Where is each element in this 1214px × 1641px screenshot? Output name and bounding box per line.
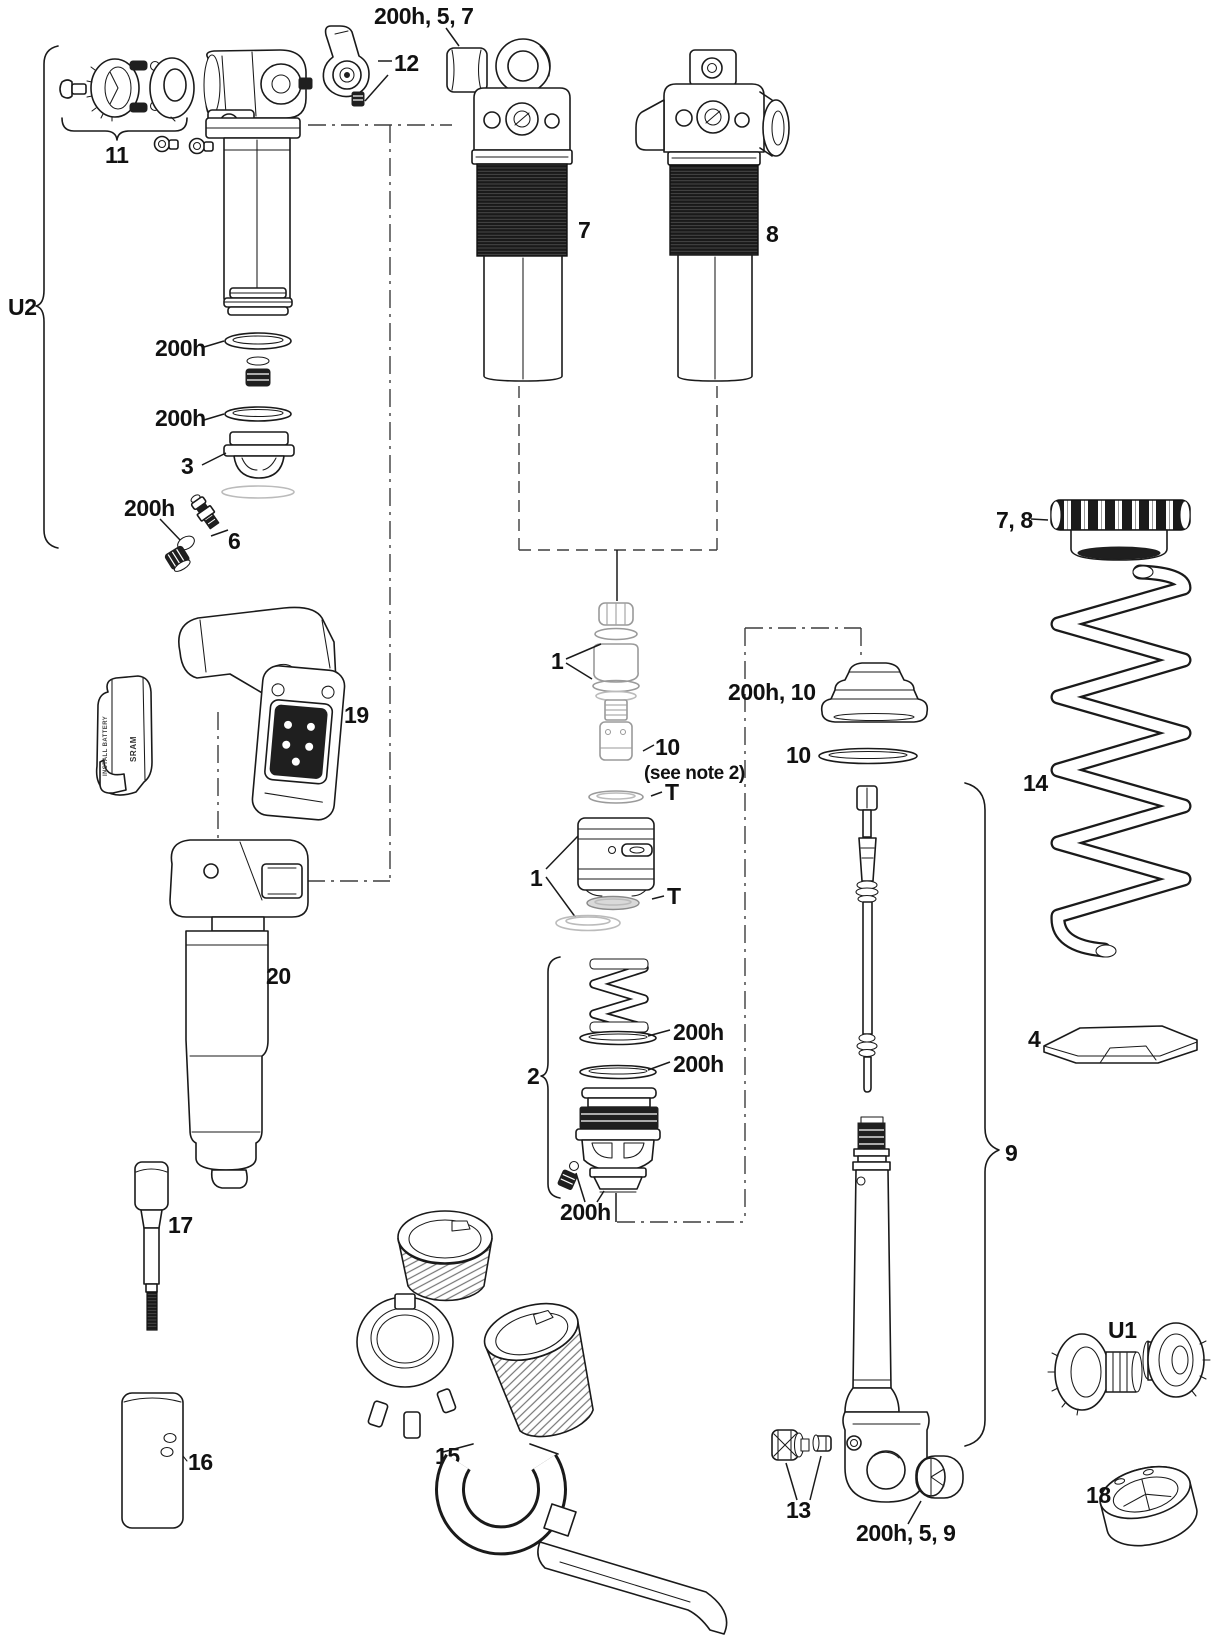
- bumper-200h-5-7: 200h, 5, 7: [374, 3, 487, 92]
- part-11-label: 11: [105, 142, 129, 168]
- damper-body-assembly: 13 200h, 5, 9: [772, 1117, 963, 1546]
- part-12-lever-group: 12: [323, 26, 418, 106]
- part-16-label: 16: [188, 1449, 213, 1475]
- shim-200h-a: [580, 1032, 656, 1045]
- shim-200h-b: [580, 1066, 656, 1079]
- grp2-200h-label-c: 200h: [560, 1199, 611, 1225]
- part-19-label: 19: [344, 702, 369, 728]
- collar-78-label: 7, 8: [996, 507, 1033, 533]
- reservoir-tube-16: 16: [122, 1393, 213, 1528]
- threaded-collar-c: [478, 1294, 607, 1447]
- bumper-top-label: 200h, 5, 7: [374, 3, 474, 29]
- air-can-assembly: [204, 50, 312, 309]
- grp2-200h-label-b: 200h: [673, 1051, 724, 1077]
- coil-spring-14: 14: [1023, 566, 1184, 957]
- preload-wrench: [443, 1444, 727, 1634]
- shock-body-7: 7: [472, 39, 590, 381]
- preload-collar-7-8: 7, 8: [996, 500, 1190, 560]
- part-13-label: 13: [786, 1497, 811, 1523]
- part-17-label: 17: [168, 1212, 193, 1238]
- u1-hardware: U1: [1048, 1317, 1210, 1415]
- bumper-200h-10: 200h, 10 10: [728, 663, 927, 768]
- body-7-label: 7: [578, 217, 590, 243]
- u2-bracket: U2: [8, 46, 58, 548]
- part-6-label: 6: [228, 528, 240, 554]
- 200h-label-c: 200h: [124, 495, 175, 521]
- o-ring-200h-b: [225, 407, 291, 421]
- bumper-200h-5-9: [916, 1456, 963, 1498]
- ifp-piston-1: [578, 818, 654, 896]
- bottom-out-plate: [590, 1168, 646, 1192]
- t-washer-lower: [587, 897, 639, 910]
- part-20-shock: 20: [170, 840, 308, 1188]
- set-screw: [352, 92, 364, 106]
- group-9-bracket: 9: [965, 783, 1017, 1446]
- module-pod: [251, 665, 346, 822]
- mount-bolt: [155, 137, 179, 152]
- part-1-label-piston: 1: [530, 865, 543, 891]
- spring-seat-4: 4: [1028, 1026, 1197, 1063]
- part-18-collar: [1095, 1458, 1203, 1554]
- part-20-label: 20: [266, 963, 291, 989]
- rebound-rod: [856, 786, 878, 1092]
- t-upper-label: T: [665, 779, 679, 805]
- part-6-air-valve: [187, 492, 221, 531]
- top-cap-1: [593, 603, 639, 701]
- damper-top-stack: 1 10 (see note 2) T 1: [530, 603, 745, 931]
- seat-4-label: 4: [1028, 1026, 1041, 1052]
- lever: [323, 26, 369, 97]
- grub-screw: [557, 1169, 577, 1190]
- part-13-nut: [772, 1430, 809, 1460]
- valve-fitting-dark: [246, 369, 270, 386]
- washer-10: [819, 749, 917, 764]
- exploded-parts-diagram: U2 11: [0, 0, 1214, 1641]
- u1-label: U1: [1108, 1317, 1137, 1343]
- u1-left-nut: [1048, 1334, 1142, 1415]
- u2-label: U2: [8, 294, 37, 320]
- o-ring-200h-a: [225, 333, 291, 349]
- part-10-label: 10: [655, 734, 680, 760]
- t-washer-upper: [589, 791, 643, 803]
- 200h-label-a: 200h: [155, 335, 206, 361]
- washer-10-label: 10: [786, 742, 811, 768]
- t-lower-label: T: [667, 883, 681, 909]
- spring-14-label: 14: [1023, 770, 1048, 796]
- mount-bolt: [190, 139, 214, 154]
- threaded-collar-a: [398, 1211, 492, 1300]
- part-19-module: 19 INSTALL BATTERY SRAM: [97, 607, 369, 821]
- part-3-label: 3: [181, 453, 193, 479]
- part-11-group: 11: [60, 58, 213, 168]
- part-3-seal-head: [224, 432, 294, 478]
- flat-screw: [60, 80, 86, 98]
- 200h-label-b: 200h: [155, 405, 206, 431]
- part-13-bushing: [813, 1435, 831, 1451]
- body-8-label: 8: [766, 221, 779, 247]
- part-18-label: 18: [1086, 1482, 1111, 1508]
- part-10-fitting: [600, 700, 632, 760]
- battery-brand-text: SRAM: [129, 736, 138, 762]
- part-1-label-top: 1: [551, 648, 564, 674]
- valve-nut: [164, 545, 192, 574]
- collar-kit-15: 15: [357, 1211, 727, 1634]
- u1-right-nut: [1143, 1323, 1210, 1397]
- part-2-group: 2 200h 200h: [527, 957, 724, 1225]
- bumper-mid-label: 200h, 10: [728, 679, 816, 705]
- group-9-label: 9: [1005, 1140, 1017, 1166]
- group-2-label: 2: [527, 1063, 539, 1089]
- small-coil-spring: [590, 959, 648, 1032]
- air-can-seal-stack: 200h 200h 3: [124, 288, 294, 574]
- grp2-200h-label-a: 200h: [673, 1019, 724, 1045]
- shaft-clamp-tool-17: 17: [135, 1162, 193, 1330]
- battery-install-text: INSTALL BATTERY: [103, 716, 109, 776]
- shaft-thread-cap: [858, 1123, 885, 1149]
- shock-body-8: 8: [636, 50, 789, 381]
- threaded-collar-b: [357, 1294, 456, 1438]
- part-12-label: 12: [394, 50, 419, 76]
- part-10-note: (see note 2): [644, 763, 745, 784]
- damper-piston: [576, 1088, 660, 1171]
- cap-washer-plate: [150, 58, 194, 121]
- bumper-bottom-label: 200h, 5, 9: [856, 1520, 956, 1546]
- battery-cover: INSTALL BATTERY SRAM: [97, 676, 152, 795]
